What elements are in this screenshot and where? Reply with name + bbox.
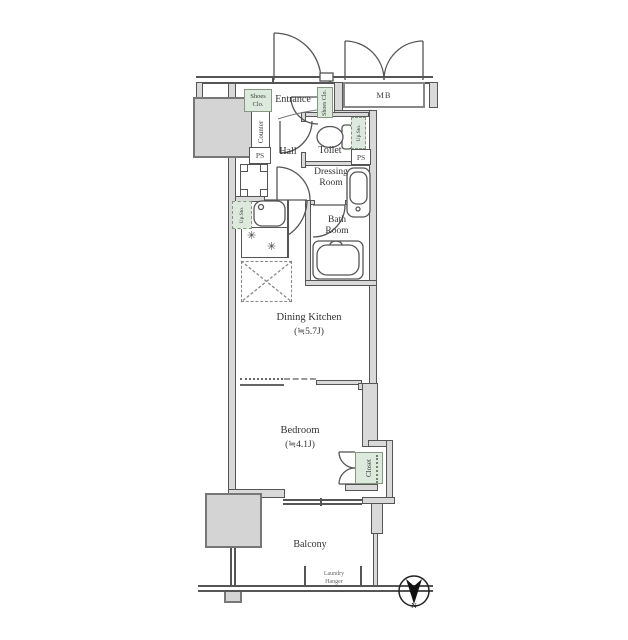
pipe-space-right: PS	[351, 149, 371, 165]
wall-segment	[305, 200, 311, 286]
toilet-label: Toilet	[310, 145, 350, 157]
hall-label: Hall	[268, 146, 308, 158]
shaft-pad	[260, 164, 268, 172]
compass-north-label: N	[406, 601, 422, 610]
meter-box: MB	[343, 82, 425, 108]
bathtub-icon	[313, 241, 363, 279]
floor-plan: ✳ ✳ MB Counter PS PS Shoes Clo. Shoes Cl…	[0, 0, 628, 640]
bath-room-label: BathRoom	[315, 215, 359, 238]
counter-label: Counter	[257, 120, 265, 143]
closet-box: Closet	[355, 452, 383, 484]
wall-segment	[429, 82, 438, 108]
window-mullion	[320, 498, 322, 506]
closet-label: Closet	[365, 459, 373, 477]
door-jamb	[272, 76, 274, 84]
door-jamb	[329, 76, 331, 84]
shaft-pad	[240, 164, 248, 172]
ps-label: PS	[256, 151, 264, 160]
sliding-door-track	[240, 378, 283, 381]
mb-door-swing-icon	[345, 41, 423, 80]
bedroom-label: Bedroom (≒4.1J)	[250, 425, 350, 451]
stove-box: ✳ ✳	[241, 227, 288, 258]
dining-kitchen-label: Dining Kitchen (≒5.7J)	[259, 312, 359, 338]
closet-hanger-pipe	[376, 455, 378, 483]
laundry-hanger-label: LaundryHanger	[314, 571, 354, 587]
closet-door-swing-icon	[339, 452, 355, 484]
laundry-hanger-post	[304, 566, 306, 587]
laundry-hanger-post	[360, 566, 362, 587]
ps-label: PS	[357, 153, 365, 162]
entrance-label: Entrance	[263, 94, 323, 106]
wall-segment	[301, 112, 306, 122]
balcony-right-wall	[373, 533, 378, 587]
shaft-pad	[260, 189, 268, 197]
wall-segment	[362, 383, 378, 447]
wall-segment	[345, 484, 378, 491]
shaft-box	[240, 164, 268, 197]
front-door-swing-icon	[274, 33, 321, 80]
kitchen-sink-icon	[254, 201, 285, 226]
wall-segment	[305, 280, 377, 286]
fridge-space-box	[241, 261, 292, 302]
balcony-label: Balcony	[270, 539, 350, 551]
sliding-door-track	[284, 378, 316, 381]
balcony-window	[283, 499, 362, 505]
structural-column	[205, 493, 262, 548]
upper-storage-kitchen: Up.Sto.	[232, 201, 252, 229]
upper-storage-toilet: Up.Sto.	[351, 117, 366, 149]
dressing-room-label: DressingRoom	[305, 167, 357, 190]
counter-edge	[287, 200, 289, 258]
burner-icon: ✳	[247, 229, 256, 242]
wall-segment	[345, 200, 369, 205]
sliding-door-panel	[240, 384, 284, 386]
burner-icon: ✳	[267, 240, 276, 253]
wall-segment	[316, 380, 362, 385]
upper-storage-label: Up.Sto.	[239, 207, 245, 224]
shaft-pad	[240, 189, 248, 197]
balcony-right-wall	[371, 503, 383, 534]
meter-box-label: MB	[376, 90, 391, 100]
wall-segment	[386, 440, 393, 504]
upper-storage-label: Up.Sto.	[356, 125, 362, 142]
balcony-left-line	[230, 548, 236, 588]
